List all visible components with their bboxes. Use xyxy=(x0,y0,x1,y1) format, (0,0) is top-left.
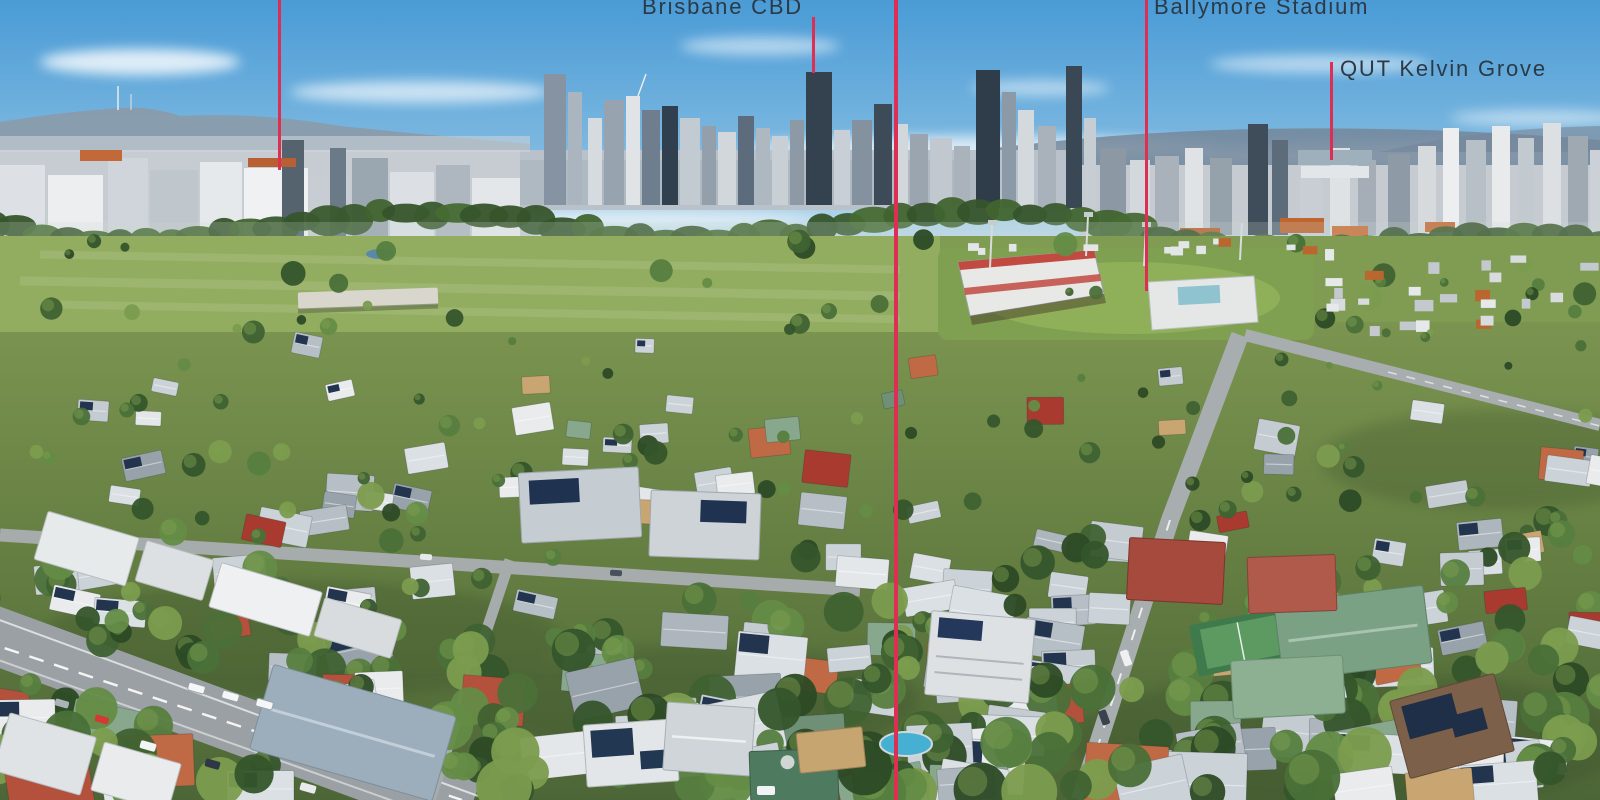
aerial-photo: Brisbane CBDBallymore StadiumQUT Kelvin … xyxy=(0,0,1600,800)
scene-illustration xyxy=(0,0,1600,800)
